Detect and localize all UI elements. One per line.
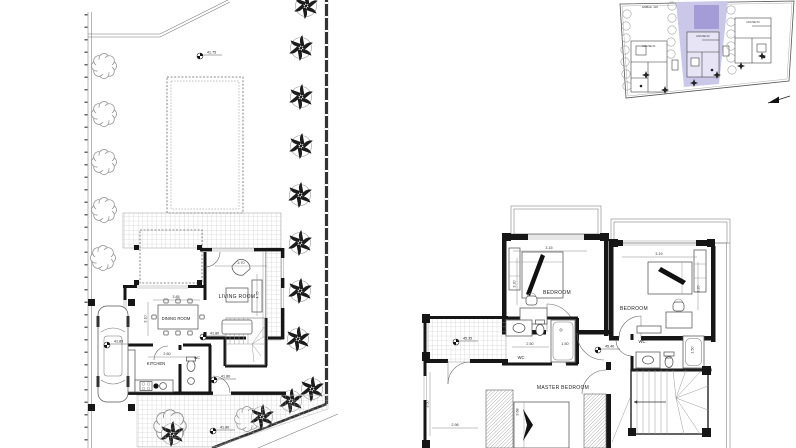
dim-dining-width: 3.85 [172, 295, 179, 299]
palm-tree-icon [289, 35, 313, 61]
dim-master-bed: 3.68 [516, 408, 520, 415]
dim-tub: 1.50 [691, 346, 695, 353]
level-driveway: 41.85 [114, 340, 123, 344]
palm-tree-icon [289, 133, 313, 159]
level-garden-path: 41.80 [220, 426, 229, 430]
key-plan-pool [694, 5, 719, 29]
veranda-door-swing [205, 252, 220, 267]
palm-tree-icon [288, 230, 312, 256]
palm-tree-icon [288, 278, 312, 304]
house-03-label: HOUSE 03 [746, 20, 760, 24]
bathroom-sink [513, 324, 525, 333]
bush-tree-icon [91, 246, 116, 271]
dresser [637, 326, 661, 333]
wardrobe [584, 394, 606, 448]
wc-right-label: WC [639, 339, 646, 344]
sofa [222, 320, 252, 334]
chair [673, 302, 684, 311]
upper-stairs [628, 366, 711, 437]
bush-tree-icon [92, 198, 117, 223]
master-bedroom-label: MASTER BEDROOM [537, 385, 589, 391]
dining-room-label: DINING ROOM [162, 316, 191, 321]
palm-tree-icon [289, 84, 313, 110]
dim-shower: 1.50 [561, 342, 568, 346]
dim-bedroom-right-w: 3.19 [655, 252, 662, 256]
palm-tree-icon [288, 182, 312, 208]
floor-plan-canvas: LIVING ROOM DINING ROOM KITCHEN WC 3.70 … [0, 0, 796, 448]
pool-outline [167, 77, 243, 213]
architectural-drawing-sheet: LIVING ROOM DINING ROOM KITCHEN WC 3.70 … [0, 0, 796, 448]
level-hall: 41.80 [221, 375, 230, 379]
kitchen-sink [160, 383, 167, 390]
hob [153, 383, 158, 388]
wc-left-label: WC [518, 355, 525, 360]
level-hall-upper: 45.40 [605, 345, 614, 349]
shower [551, 320, 575, 362]
dim-master-w: 2.98 [451, 423, 458, 427]
dim-bedroom-left-d: 3.20 [513, 280, 517, 287]
ground-furniture [127, 259, 262, 392]
dim-wc-right-w: 2.00 [665, 356, 671, 360]
bush-tree-icon [92, 150, 117, 175]
living-room-label: LIVING ROOM [219, 294, 256, 300]
level-terrace: 41.80 [210, 332, 219, 336]
site-plan: LIVING ROOM DINING ROOM KITCHEN WC 3.70 … [86, 0, 338, 448]
house-02-label: HOUSE 02 [696, 34, 710, 38]
chair [526, 296, 537, 305]
house-03-outline [735, 18, 771, 63]
dim-kitchen-width: 2.60 [163, 352, 170, 356]
bedroom-left-label: BEDROOM [543, 290, 571, 296]
bathroom-sink [643, 356, 654, 364]
wc-label: WC [194, 356, 200, 360]
dim-living-depth: 4.75 [256, 291, 260, 298]
bush-tree-icon [92, 102, 117, 127]
toilet [187, 361, 195, 372]
bush-tree-icon [92, 54, 117, 79]
bedroom-right-label: BEDROOM [620, 306, 648, 312]
dim-bath-w: 2.50 [526, 342, 533, 346]
dim-bedroom-left-w: 3.15 [545, 246, 552, 250]
toilet [536, 325, 544, 336]
level-landing: 45.35 [463, 337, 472, 341]
dim-dining-depth: 3.10 [144, 315, 148, 322]
palm-tree-icon [294, 0, 318, 19]
paved-terrace [137, 395, 328, 447]
dim-living-width: 3.70 [237, 261, 244, 265]
key-plan: HOUSE 01 HOUSE 02 HOUSE 03 ΕΜΒΑΔ. 418 [620, 1, 794, 103]
stove [140, 382, 152, 391]
first-floor-plan: BEDROOM BEDROOM MASTER BEDROOM WC WC 3.1… [422, 206, 730, 448]
bed [648, 262, 692, 294]
dim-bedroom-right-d: 3.20 [697, 285, 701, 292]
desk [666, 312, 692, 328]
wardrobe [486, 390, 513, 448]
dim-master-d: 3.50 [426, 400, 430, 407]
north-arrow-icon [768, 96, 790, 103]
house-01-label: HOUSE 01 [642, 44, 656, 48]
house-02-outline [687, 32, 719, 77]
bed [514, 402, 569, 448]
level-garden-top: 41.75 [207, 51, 216, 55]
key-plan-area-label: ΕΜΒΑΔ. 418 [642, 5, 658, 9]
kitchen-label: KITCHEN [147, 361, 165, 366]
car [88, 299, 135, 411]
palm-tree-icon [286, 326, 310, 352]
wc-sink [188, 378, 195, 385]
